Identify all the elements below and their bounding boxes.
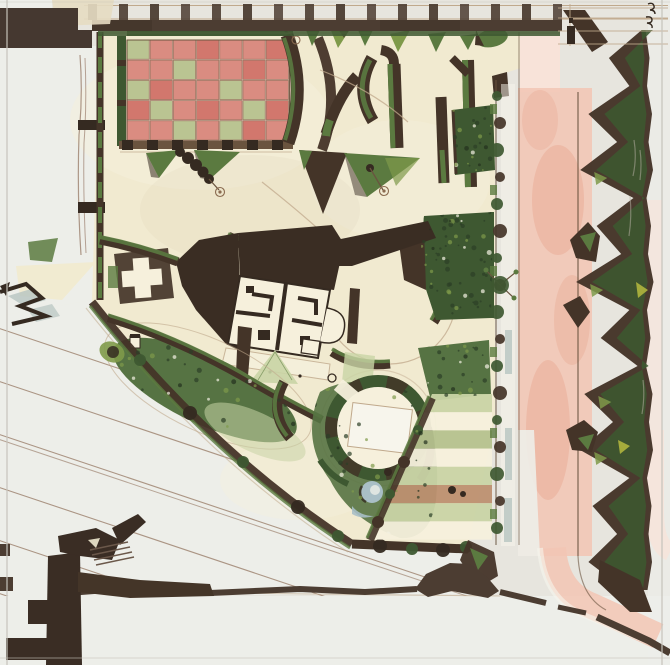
- speckle: [339, 473, 343, 477]
- speckle: [450, 303, 454, 307]
- speckle: [473, 124, 476, 127]
- speckle: [430, 283, 432, 285]
- speckle: [489, 133, 491, 135]
- speckle: [226, 425, 229, 428]
- speckle: [344, 434, 348, 438]
- fence-post: [460, 4, 469, 20]
- speckle: [469, 165, 471, 167]
- crescent-green-tip: [326, 120, 330, 136]
- rosette-center: [382, 189, 385, 192]
- parterre-tile: [220, 101, 242, 120]
- speckle: [471, 150, 475, 154]
- speckle: [482, 169, 484, 171]
- speckle: [465, 350, 468, 353]
- parterre-tile: [243, 101, 265, 120]
- hedge-notch: [117, 100, 126, 106]
- speckle: [477, 306, 480, 309]
- fence-post: [367, 4, 376, 20]
- speckle: [480, 258, 483, 261]
- road-wash: [554, 275, 590, 365]
- speckle: [490, 125, 492, 127]
- speckle: [460, 220, 462, 222]
- parterre-tile: [197, 60, 219, 79]
- speckle: [141, 388, 144, 391]
- fence-post: [243, 4, 252, 20]
- parterre-tile: [150, 101, 172, 120]
- speckle: [194, 378, 198, 382]
- speckle: [443, 218, 448, 223]
- parterre-tile: [243, 80, 265, 99]
- allee-tree: [491, 198, 503, 210]
- parterre-tile: [127, 60, 149, 79]
- dense-plot-small: [452, 105, 495, 175]
- gate-post-mark: [567, 26, 575, 44]
- parterre-tile: [127, 101, 149, 120]
- allee-tree: [495, 496, 505, 506]
- parterre-tile: [197, 40, 219, 59]
- speckle: [392, 395, 396, 399]
- speckle: [474, 347, 478, 351]
- speckle: [223, 388, 228, 393]
- fence-post: [119, 4, 128, 20]
- speckle: [446, 345, 449, 348]
- allee-tree: [495, 172, 505, 182]
- speckle: [346, 463, 348, 465]
- speckle: [337, 438, 339, 440]
- wall-dark-patch: [380, 20, 460, 31]
- speckle: [451, 387, 455, 391]
- speckle: [458, 245, 460, 247]
- parterre-tile: [150, 40, 172, 59]
- speckle: [338, 460, 343, 465]
- hedge-segment: [490, 428, 497, 438]
- speckle: [472, 301, 474, 303]
- wall-pier: [122, 140, 133, 150]
- speckle: [478, 134, 482, 138]
- hedge-segment: [490, 185, 497, 195]
- speckle: [189, 350, 193, 354]
- speckle: [245, 380, 248, 383]
- rosette-center: [218, 190, 221, 193]
- plan-canvas: [0, 0, 670, 665]
- speckle: [352, 490, 354, 492]
- parterre-tile: [173, 60, 195, 79]
- speckle: [436, 290, 438, 292]
- gate-dot: [569, 18, 573, 23]
- fence-wall-bar: [92, 20, 562, 31]
- parterre-tile: [173, 121, 195, 140]
- stripe-band: [401, 449, 492, 467]
- parterre-tile: [150, 121, 172, 140]
- allee-tree: [492, 91, 502, 101]
- speckle: [455, 144, 458, 147]
- speckle: [442, 357, 445, 360]
- parterre-tile: [173, 80, 195, 99]
- speckle: [454, 234, 458, 238]
- tree-dot: [107, 346, 119, 358]
- parterre-tile: [266, 60, 288, 79]
- hedge-segment: [490, 104, 497, 114]
- speckle: [488, 156, 493, 161]
- parterre-tile: [220, 60, 242, 79]
- tree-blob: [385, 489, 395, 499]
- speckle: [465, 239, 468, 242]
- speckle: [330, 455, 333, 458]
- fence-post: [491, 4, 500, 20]
- speckle: [120, 363, 124, 367]
- speckle: [427, 382, 429, 384]
- speckle: [463, 294, 467, 298]
- leaf-dot: [484, 268, 489, 273]
- tree-dot: [448, 486, 456, 494]
- speckle: [459, 306, 461, 308]
- tree-dot: [384, 468, 392, 476]
- allee-tree: [492, 253, 502, 263]
- speckle: [150, 353, 155, 358]
- stripe-band: [385, 485, 492, 503]
- fence-post: [150, 4, 159, 20]
- wall-pier: [147, 140, 158, 150]
- speckle: [480, 300, 482, 302]
- speckle: [469, 293, 474, 298]
- speckle: [461, 373, 464, 376]
- small-hut: [301, 339, 320, 355]
- speckle: [424, 440, 428, 444]
- speckle: [481, 234, 486, 239]
- stripe-band: [369, 521, 492, 539]
- speckle: [471, 156, 474, 159]
- boundary-tree: [134, 354, 146, 366]
- hedge-notch: [117, 60, 126, 66]
- fence-post: [181, 4, 190, 20]
- speckle: [484, 145, 488, 149]
- speckle: [454, 306, 458, 310]
- speckle: [464, 146, 469, 151]
- speckle: [184, 363, 186, 365]
- allee-tree: [493, 224, 507, 238]
- road-top-segment: [520, 30, 560, 92]
- speckle: [439, 247, 441, 249]
- speckle: [207, 398, 210, 401]
- speckle: [481, 289, 485, 293]
- allee-tree: [494, 441, 506, 453]
- parterre-tile: [243, 60, 265, 79]
- allee-tree: [491, 360, 503, 372]
- speckle: [422, 240, 425, 243]
- parterre-tile: [220, 80, 242, 99]
- gutter-segment: [504, 498, 512, 542]
- speckle: [473, 300, 478, 305]
- speckle: [472, 347, 474, 349]
- speckle: [435, 252, 437, 254]
- parterre-tile: [220, 121, 242, 140]
- fence-post: [305, 4, 314, 20]
- speckle: [479, 142, 482, 145]
- terrace-post: [298, 374, 301, 377]
- parterre-tiles: [127, 40, 288, 140]
- garden-plan-watercolor: [0, 0, 670, 665]
- parterre-tile: [173, 101, 195, 120]
- speckle: [457, 128, 462, 133]
- boundary-tree: [332, 530, 344, 542]
- parterre-tile: [150, 80, 172, 99]
- speckle: [448, 240, 452, 244]
- parterre-tile: [197, 80, 219, 99]
- speckle: [458, 392, 462, 396]
- speckle: [463, 345, 466, 348]
- speckle: [485, 274, 488, 277]
- speckle: [484, 106, 487, 109]
- parterre-tile: [197, 101, 219, 120]
- speckle: [431, 247, 434, 250]
- speckle: [437, 350, 441, 354]
- parterre-tile: [220, 40, 242, 59]
- speckle: [455, 218, 460, 223]
- speckle: [445, 267, 450, 272]
- boundary-tree: [291, 500, 305, 514]
- leaf-dot: [514, 270, 519, 275]
- speckle: [445, 245, 447, 247]
- block-fragment: [80, 33, 89, 40]
- speckle: [417, 496, 420, 499]
- dark-structure-bar: [46, 552, 82, 665]
- north-hedge-line: [98, 31, 560, 36]
- speckle: [444, 259, 449, 264]
- leaf-dot: [512, 296, 517, 301]
- speckle: [254, 384, 257, 387]
- tree-blob: [398, 456, 410, 468]
- boundary-tree: [406, 543, 418, 555]
- speckle: [466, 235, 470, 239]
- speckle: [423, 483, 427, 487]
- speckle: [471, 381, 473, 383]
- allee-tree: [491, 522, 503, 534]
- speckle: [483, 261, 485, 263]
- speckle: [444, 393, 448, 397]
- allee-tree: [492, 415, 502, 425]
- speckle: [128, 357, 131, 360]
- parterre-tile: [266, 101, 288, 120]
- speckle: [448, 222, 453, 227]
- boundary-tree: [373, 539, 387, 553]
- speckle: [236, 398, 241, 403]
- speckle: [458, 350, 460, 352]
- cross-arm-v: [133, 257, 152, 298]
- inner-block: [246, 286, 254, 293]
- tree-dot: [460, 491, 466, 497]
- parterre-tile: [127, 40, 149, 59]
- speckle: [429, 285, 433, 289]
- corner-white: [0, 0, 52, 8]
- hedge-segment: [490, 347, 497, 357]
- speckle: [415, 459, 417, 461]
- speckle: [430, 270, 433, 273]
- speckle: [482, 354, 484, 356]
- speckle: [167, 358, 170, 361]
- speckle: [468, 388, 473, 393]
- speckle: [365, 438, 368, 441]
- speckle: [132, 377, 135, 380]
- speckle: [337, 446, 340, 449]
- gate-post-cap: [130, 334, 140, 338]
- plot-textured: [418, 340, 491, 401]
- speckle: [197, 368, 202, 373]
- allee-tree: [495, 334, 505, 344]
- speckle: [417, 490, 419, 492]
- speckle: [216, 379, 219, 382]
- speckle: [371, 464, 375, 468]
- speckle: [478, 163, 481, 166]
- hedge-band-green: [390, 64, 393, 148]
- speckle: [411, 405, 413, 407]
- speckle: [231, 379, 236, 384]
- speckle: [445, 235, 448, 238]
- hedge-segment: [490, 509, 497, 519]
- terrace-roundel: [328, 374, 336, 382]
- wall-pier: [247, 140, 258, 150]
- speckle: [136, 351, 140, 355]
- allee-tree: [493, 386, 507, 400]
- parterre-tile: [243, 40, 265, 59]
- speckle: [429, 229, 431, 231]
- allee-tree: [490, 143, 504, 157]
- speckle: [178, 383, 182, 387]
- speckle: [470, 272, 475, 277]
- parterre-tile: [243, 121, 265, 140]
- allee-tree: [494, 117, 506, 129]
- cross-green-bit: [108, 266, 118, 288]
- fence-post: [429, 4, 438, 20]
- boundary-tree: [237, 456, 249, 468]
- wall-pier: [272, 140, 283, 150]
- gutter-segment: [505, 330, 512, 374]
- structure-step: [6, 638, 48, 660]
- speckle: [359, 496, 363, 500]
- road-wash: [522, 90, 558, 150]
- fence-post: [398, 4, 407, 20]
- fence-post: [212, 4, 221, 20]
- speckle: [467, 163, 469, 165]
- speckle: [437, 374, 442, 379]
- court-rectangle: [348, 403, 413, 454]
- speckle: [438, 385, 443, 390]
- pond-highlight: [370, 485, 380, 495]
- stripe-band: [424, 394, 492, 412]
- speckle: [339, 425, 341, 427]
- parterre-tile: [173, 40, 195, 59]
- speckle: [418, 431, 422, 435]
- stripe-band: [377, 503, 492, 521]
- wall-pier: [197, 140, 208, 150]
- speckle: [475, 169, 477, 171]
- parterre-tile: [127, 80, 149, 99]
- parterre-tile: [197, 121, 219, 140]
- speckle: [459, 282, 462, 285]
- speckle: [446, 289, 450, 293]
- edge-mark: [0, 544, 10, 556]
- speckle: [463, 354, 467, 358]
- speckle: [415, 430, 418, 433]
- speckle: [425, 254, 427, 256]
- speckle: [347, 452, 351, 456]
- fence-post: [522, 4, 531, 20]
- allee-tree: [490, 467, 504, 481]
- fence-post: [274, 4, 283, 20]
- speckle: [326, 434, 331, 439]
- speckle: [375, 474, 380, 479]
- boundary-tree: [436, 543, 450, 557]
- stripe-band: [393, 467, 492, 485]
- speckle: [173, 355, 177, 359]
- speckle: [287, 411, 290, 414]
- wall-pier: [222, 140, 233, 150]
- speckle: [424, 264, 426, 266]
- speckle: [221, 418, 226, 423]
- speckle: [447, 283, 451, 287]
- speckle: [487, 250, 492, 255]
- speckle: [471, 245, 476, 250]
- speckle: [166, 345, 171, 350]
- speckle: [449, 220, 451, 222]
- speckle: [463, 246, 466, 249]
- speckle: [459, 361, 462, 364]
- tree-crown: [491, 276, 509, 294]
- parterre-west-hedge: [117, 36, 126, 146]
- speckle: [451, 312, 453, 314]
- inner-block: [258, 330, 270, 340]
- parterre-tile: [150, 60, 172, 79]
- structure-step: [28, 600, 48, 624]
- speckle: [485, 364, 489, 368]
- gutter-segment: [505, 428, 512, 480]
- speckle: [442, 257, 445, 260]
- speckle: [342, 469, 346, 473]
- speckle: [472, 119, 475, 122]
- hedge-band-green: [442, 150, 444, 183]
- speckle: [456, 214, 459, 217]
- boundary-tree: [183, 406, 197, 420]
- hedge-segment: [490, 266, 497, 276]
- speckle: [483, 220, 485, 222]
- speckle: [461, 224, 465, 228]
- allee-tree: [490, 305, 504, 319]
- speckle: [396, 490, 398, 492]
- speckle: [442, 226, 446, 230]
- speckle: [291, 422, 296, 427]
- tree-blob: [372, 516, 384, 528]
- speckle: [475, 121, 480, 126]
- speckle: [167, 392, 170, 395]
- speckle: [483, 378, 487, 382]
- speckle: [483, 117, 486, 120]
- parterre-tile: [127, 121, 149, 140]
- parterre-tile: [266, 80, 288, 99]
- speckle: [428, 467, 431, 470]
- speckle: [435, 259, 437, 261]
- speckle: [473, 145, 477, 149]
- fence-post: [336, 4, 345, 20]
- speckle: [357, 422, 361, 426]
